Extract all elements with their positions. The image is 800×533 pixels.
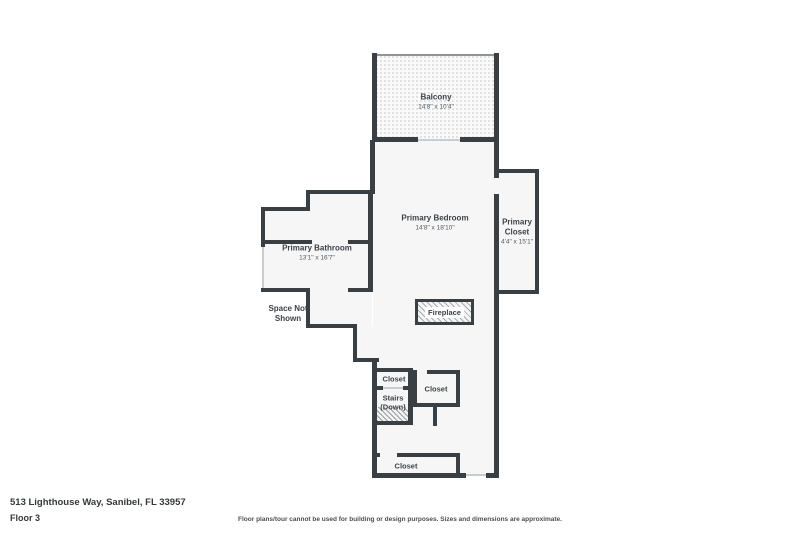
primary-bedroom-label: Primary Bedroom 14'8" x 18'10"	[390, 213, 480, 232]
wall-segment	[456, 453, 460, 478]
wall-segment	[306, 324, 357, 328]
wall-segment	[456, 370, 460, 407]
wall-segment	[306, 190, 372, 194]
balcony-label: Balcony 14'8" x 10'4"	[396, 92, 476, 111]
primary-bathroom-label: Primary Bathroom 13'1" x 16'7"	[270, 243, 365, 262]
balcony-railing	[377, 54, 494, 56]
space-not-shown-label: Space Not Shown	[264, 304, 312, 324]
wall-segment	[494, 53, 499, 142]
closet-bottom-label: Closet	[386, 461, 426, 470]
primary-bedroom-area	[373, 140, 496, 360]
wall-segment	[372, 137, 418, 142]
wall-segment	[353, 324, 357, 362]
corridor-area	[308, 290, 372, 326]
wall-segment	[372, 473, 466, 478]
closet-top-left-label: Closet	[377, 374, 411, 383]
closet-door	[383, 387, 403, 389]
wall-segment	[377, 421, 413, 425]
wall-segment	[261, 288, 310, 292]
wall-segment	[261, 207, 310, 211]
wall-segment	[397, 453, 460, 457]
wall-segment	[368, 192, 373, 292]
closet-right-label: Closet	[418, 384, 454, 393]
window	[262, 247, 264, 288]
wall-segment	[427, 370, 456, 374]
address-text: 513 Lighthouse Way, Sanibel, FL 33957	[10, 497, 186, 508]
disclaimer-text: Floor plans/tour cannot be used for buil…	[0, 516, 800, 523]
stairs-label: Stairs (Down)	[376, 394, 410, 413]
window	[466, 474, 486, 476]
wall-segment	[433, 407, 437, 426]
sliding-door	[418, 139, 460, 141]
wall-segment	[348, 288, 373, 292]
wall-segment	[494, 290, 539, 294]
wall-segment	[372, 453, 380, 457]
fireplace: Fireplace	[415, 299, 474, 325]
fireplace-label: Fireplace	[425, 307, 464, 318]
wall-segment	[486, 473, 499, 478]
wall-segment	[494, 169, 539, 173]
corridor-area-2	[355, 326, 375, 360]
primary-closet-label: Primary Closet 4'4" x 15'1"	[498, 217, 536, 246]
wall-segment	[413, 370, 417, 407]
wall-segment	[370, 140, 375, 194]
wall-segment	[372, 53, 377, 142]
floor-plan-canvas: Fireplace Balcony 14'8" x 10'4" Primary …	[0, 0, 800, 533]
